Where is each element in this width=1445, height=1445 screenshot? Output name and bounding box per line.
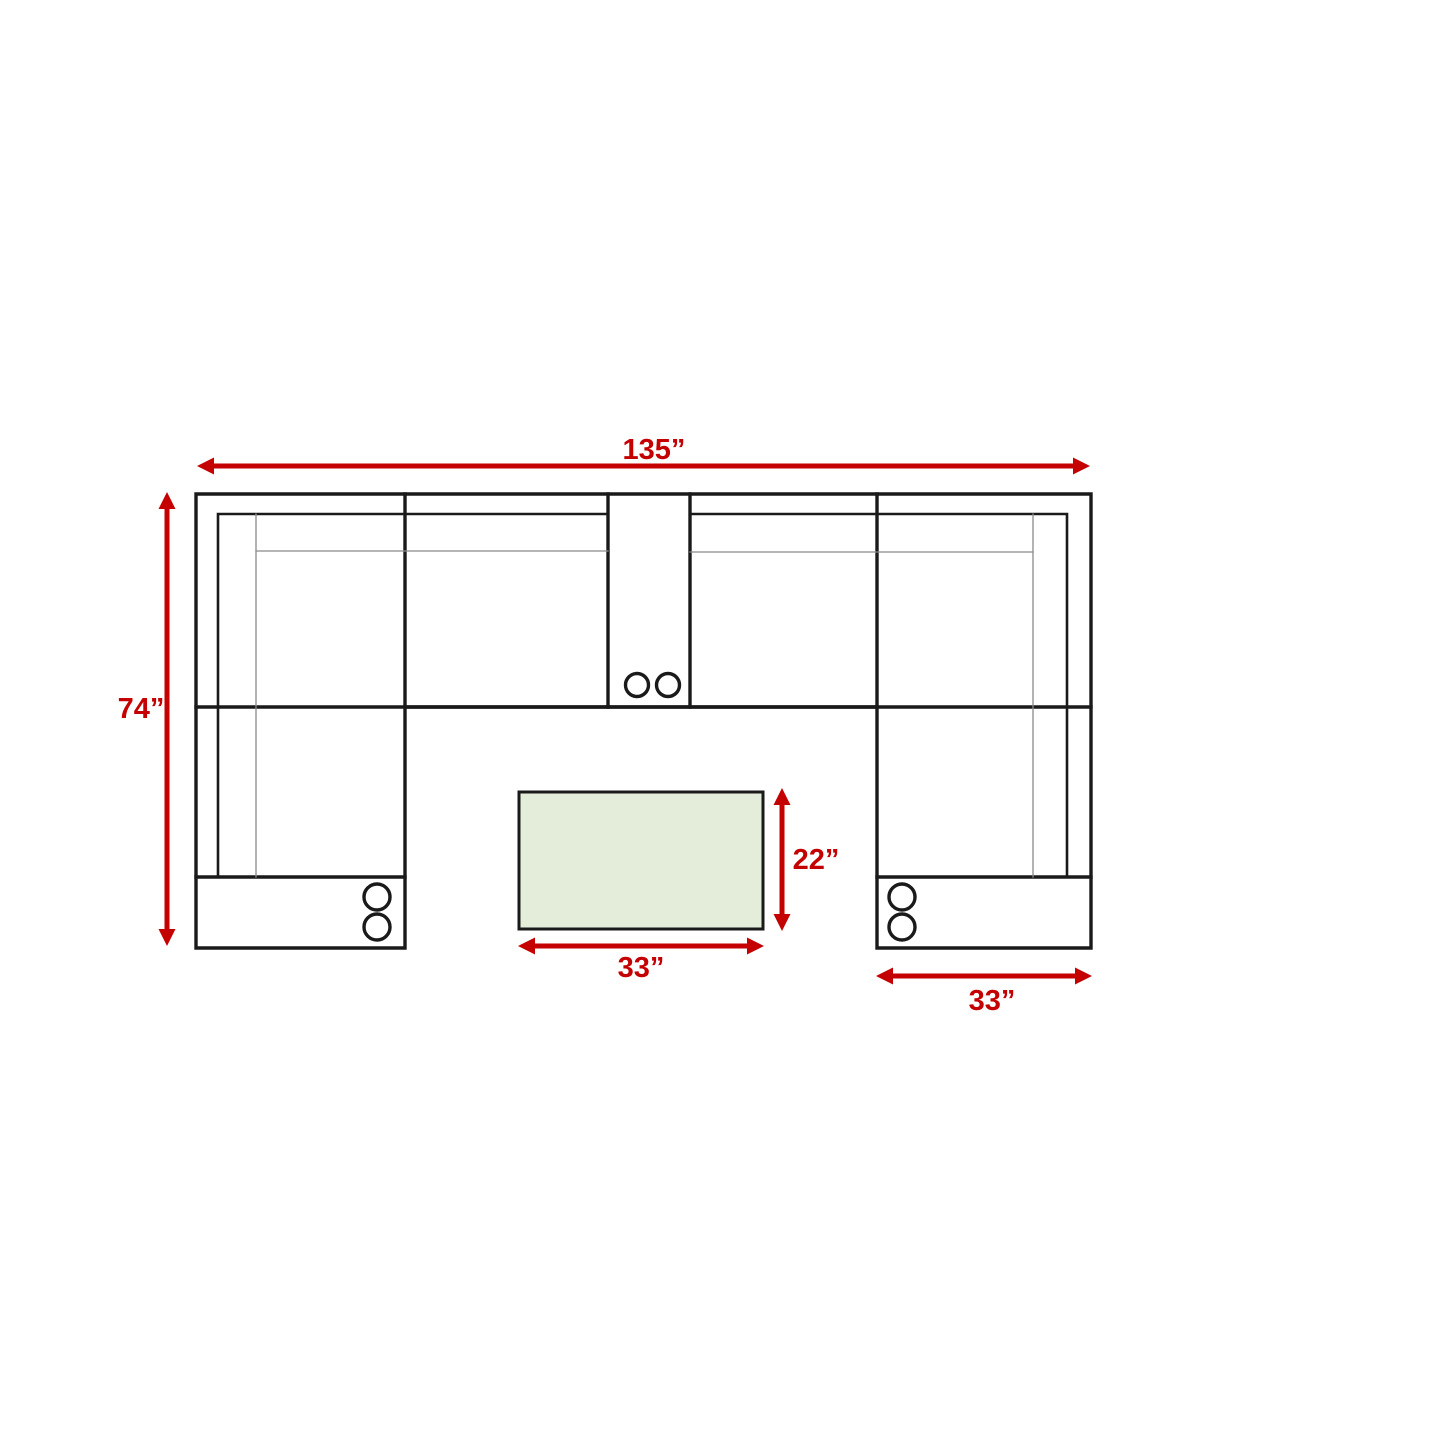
ottoman-depth-arrow-head-top-icon — [774, 788, 791, 805]
ottoman-width-arrow-head-right-icon — [747, 938, 764, 955]
ottoman-width-label: 33” — [618, 952, 665, 984]
right-chaise-width-arrow-head-left-icon — [876, 968, 893, 985]
overall-width-label: 135” — [623, 434, 686, 466]
sectional-floorplan-svg: 135” 74” 33” 22” 33” — [0, 0, 1445, 1445]
console-cupholder-right-icon — [657, 674, 680, 697]
ottoman-width-arrow-head-left-icon — [518, 938, 535, 955]
dimension-right-chaise-width: 33” — [876, 968, 1092, 1018]
ottoman-depth-label: 22” — [793, 844, 840, 876]
right-chaise-cupholder-top-icon — [889, 884, 915, 910]
overall-depth-label: 74” — [118, 693, 165, 725]
ottoman-depth-arrow-head-bottom-icon — [774, 914, 791, 931]
dimension-overall-depth: 74” — [118, 492, 176, 946]
diagram-canvas: 135” 74” 33” 22” 33” — [0, 0, 1445, 1445]
overall-depth-arrow-head-top-icon — [159, 492, 176, 509]
dimension-overall-width: 135” — [197, 434, 1090, 475]
overall-depth-arrow-head-bottom-icon — [159, 929, 176, 946]
console-cupholder-left-icon — [626, 674, 649, 697]
overall-width-arrow-head-left-icon — [197, 458, 214, 475]
dimension-ottoman-depth: 22” — [774, 788, 840, 931]
right-chaise-width-arrow-head-right-icon — [1075, 968, 1092, 985]
left-chaise-cupholder-top-icon — [364, 884, 390, 910]
ottoman-rect — [519, 792, 763, 929]
left-chaise-cupholder-bottom-icon — [364, 914, 390, 940]
right-chaise-cupholder-bottom-icon — [889, 914, 915, 940]
dimension-ottoman-width: 33” — [518, 938, 764, 985]
overall-width-arrow-head-right-icon — [1073, 458, 1090, 475]
right-chaise-width-label: 33” — [969, 985, 1016, 1017]
